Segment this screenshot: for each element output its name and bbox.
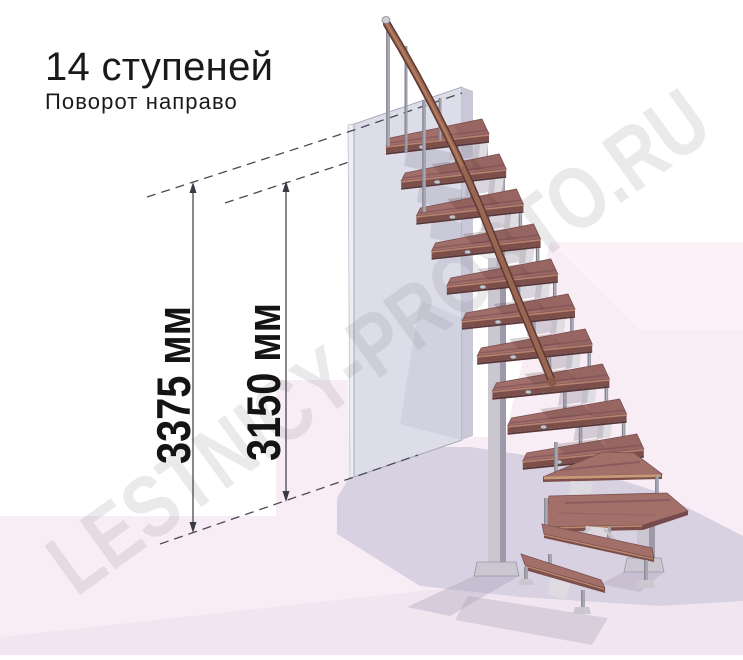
svg-text:3150 мм: 3150 мм xyxy=(237,303,290,461)
svg-text:3375 мм: 3375 мм xyxy=(147,306,200,464)
